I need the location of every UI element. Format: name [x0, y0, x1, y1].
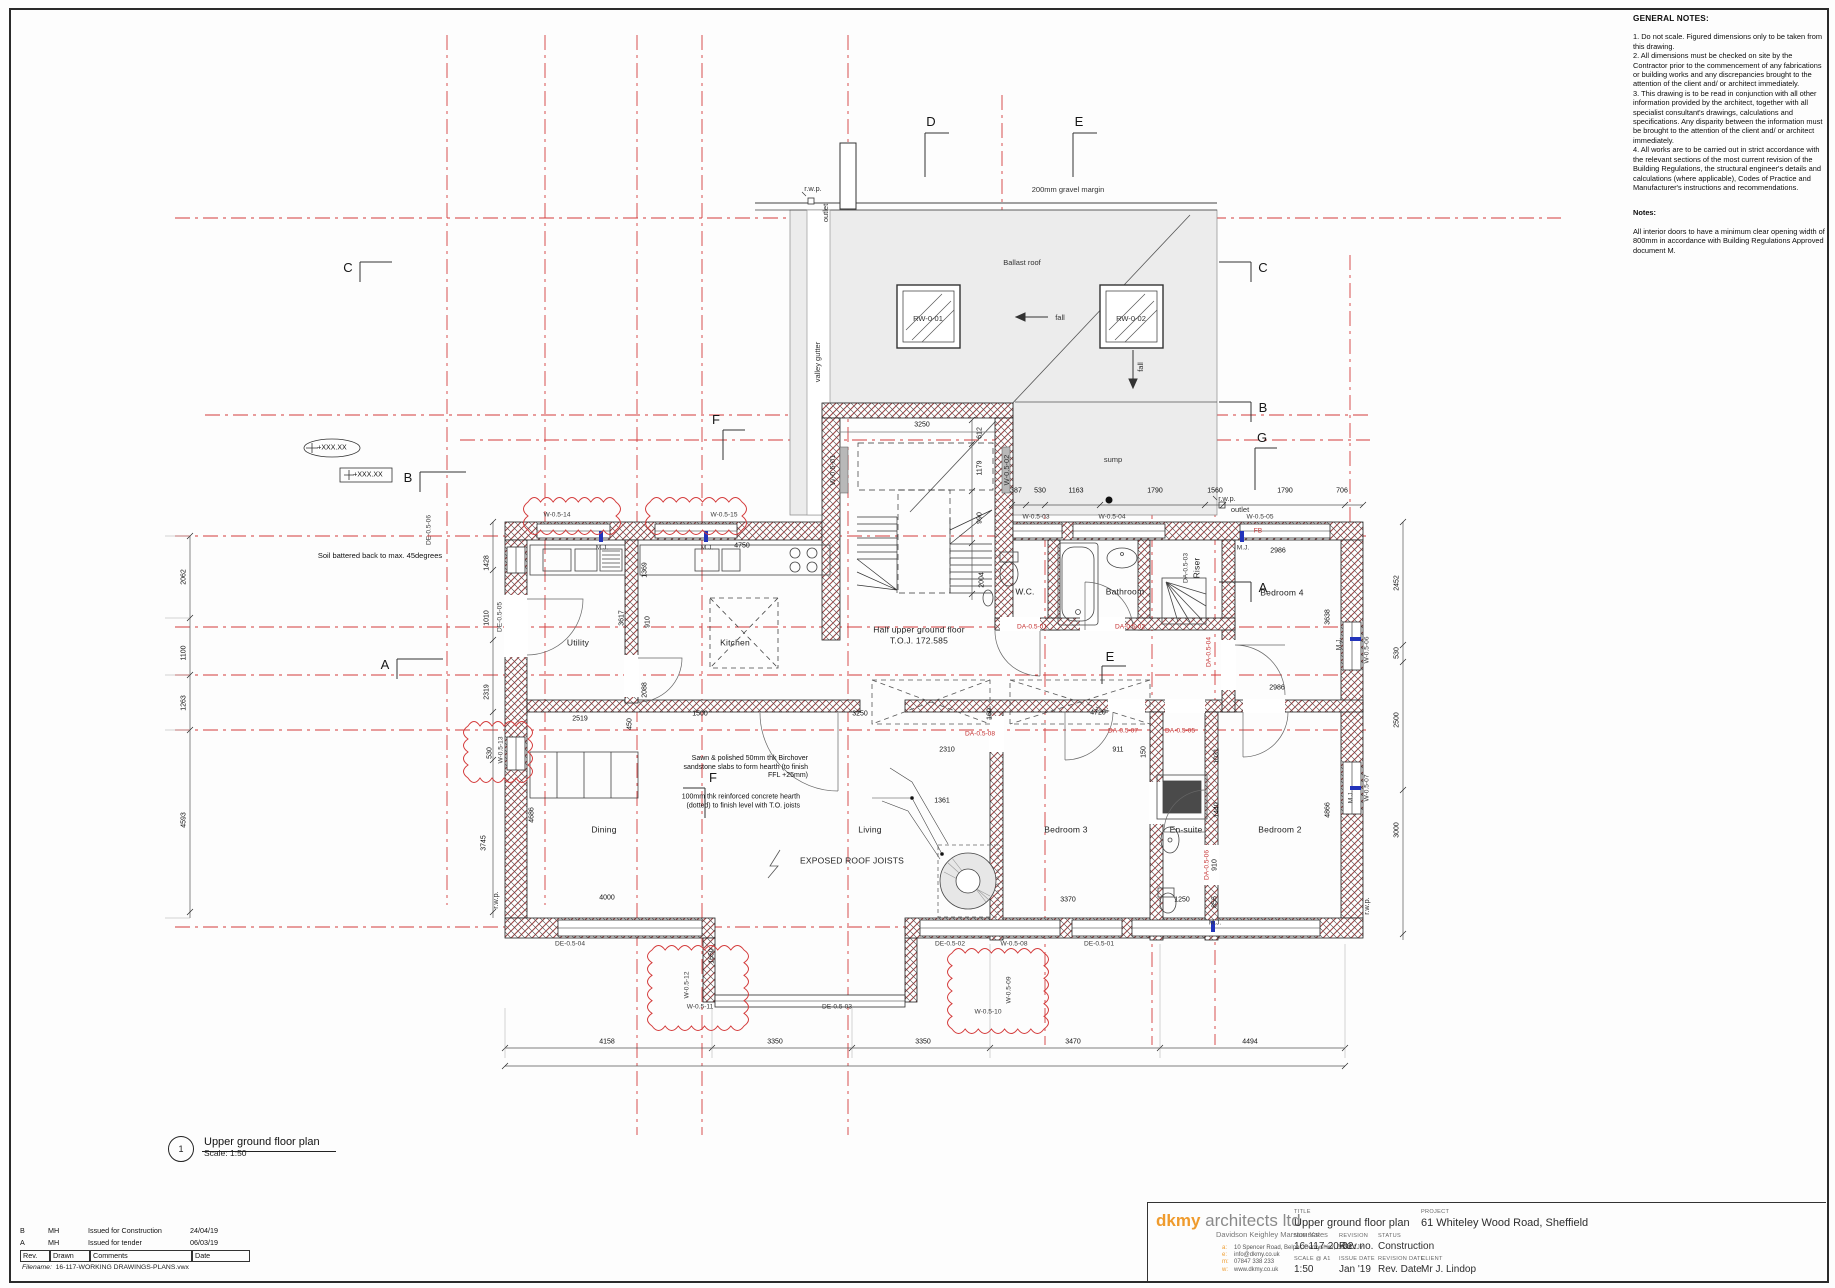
roof-label: r.w.p. [1218, 495, 1236, 503]
room-label: Kitchen [720, 639, 750, 648]
opening-tag: W-0.5-10 [975, 1010, 1002, 1017]
opening-tag: DA-0.5-04 [1207, 637, 1214, 667]
opening-tag: W-0.5-05 [1247, 515, 1274, 522]
roof-label: outlet [822, 204, 830, 222]
grid-letter: A [1259, 581, 1268, 595]
dimension-label: 3617 [618, 610, 625, 626]
opening-tag: DE-0.5-01 [1084, 942, 1114, 949]
room-label: W.C. [1015, 588, 1034, 597]
roof-label: fall [1137, 362, 1145, 372]
notes-body: All interior doors to have a minimum cle… [1633, 227, 1826, 255]
roof-label: 200mm gravel margin [1032, 186, 1105, 194]
opening-tag: DE-0.5-02 [935, 942, 965, 949]
dimension-label: 2319 [483, 684, 490, 700]
opening-tag: M.J. [1237, 546, 1249, 553]
dimension-label: 1250 [1174, 896, 1190, 903]
opening-tag: W-0.5-09 [1007, 977, 1014, 1004]
opening-tag: DA-0.5-06 [1205, 850, 1212, 880]
issue-date: Jan '19 [1339, 1264, 1371, 1275]
opening-tag: M.J. [701, 546, 713, 553]
dimension-label: 3638 [1324, 609, 1331, 625]
dimension-label: 612 [976, 427, 983, 439]
grid-letter: C [343, 261, 352, 275]
general-notes-heading: GENERAL NOTES: [1633, 14, 1826, 23]
dimension-label: 1010 [483, 610, 490, 626]
room-label: Living [858, 826, 881, 835]
dimension-label: 1100 [180, 645, 187, 660]
opening-tag: W-0.5-07 [1365, 775, 1372, 802]
opening-tag: W-0.5-08 [1001, 942, 1028, 949]
dimension-label: 2088 [641, 682, 648, 698]
grid-letter: C [1258, 261, 1267, 275]
dimension-label: 1560 [1207, 487, 1223, 494]
grid-letter: G [1257, 431, 1267, 445]
opening-tag: DA-0.5-05 [1165, 729, 1195, 736]
room-label: Bedroom 2 [1258, 826, 1301, 835]
dimension-label: 3470 [1065, 1038, 1081, 1045]
dimension-label: 3250 [852, 710, 868, 717]
dimension-label: 530 [486, 747, 493, 759]
opening-tag: DA-0.5-02 [1115, 625, 1145, 632]
notes-heading: Notes: [1633, 208, 1826, 217]
title-label: TITLE [1294, 1209, 1311, 1215]
dimension-label: 1031 [1213, 748, 1220, 764]
soil-note: Soil battered back to max. 45degrees [318, 552, 442, 560]
dimension-label: 530 [1034, 487, 1046, 494]
room-label: Dining [591, 826, 616, 835]
opening-tag: W-0.5-03 [1023, 515, 1050, 522]
roof-label: fall [1055, 314, 1065, 322]
dimension-label: 1790 [1277, 487, 1293, 494]
dimension-label: 4494 [1242, 1038, 1258, 1045]
client-label: CLIENT [1421, 1256, 1443, 1262]
opening-tag: DE-0.5-03 [822, 1005, 852, 1012]
room-label: Bedroom 3 [1044, 826, 1087, 835]
dimension-label: 4750 [734, 542, 750, 549]
revision-value: Rev no. [1339, 1241, 1373, 1252]
revision-date: Rev. Date [1378, 1264, 1422, 1275]
dimension-label: 2500 [1393, 712, 1400, 728]
dimension-label: 4000 [599, 894, 615, 901]
dimension-label: 2452 [1393, 575, 1400, 591]
room-label: T.O.J. 172.585 [890, 637, 948, 646]
dimension-label: 1650 [708, 948, 715, 964]
room-label: EXPOSED ROOF JOISTS [800, 857, 904, 866]
dimension-label: 3000 [1393, 822, 1400, 838]
dimension-label: 4593 [180, 812, 187, 828]
opening-tag: DA-0.5-07 [1108, 729, 1138, 736]
plan-number-bubble: 1 [168, 1136, 194, 1162]
roof-label: RW-0-01 [913, 315, 943, 323]
dimension-label: 1369 [641, 562, 648, 578]
opening-tag: DE-0.5-05 [498, 602, 505, 632]
drawing-scale: 1:50 [1294, 1264, 1313, 1275]
dimension-label: 3745 [480, 835, 487, 851]
plan-title-text: Upper ground floor plan [204, 1136, 320, 1148]
dimension-label: 910 [644, 616, 651, 628]
opening-tag: M.J. [1349, 791, 1356, 803]
opening-tag: W-0.5-15 [711, 513, 738, 520]
hearth-note-1: Sawn & polished 50mm thk Birchover sands… [683, 755, 808, 781]
opening-tag: FB [1254, 529, 1262, 536]
dimension-label: 4866 [1324, 802, 1331, 818]
roof-label: r.w.p. [804, 185, 822, 193]
dimension-label: 530 [1393, 647, 1400, 659]
opening-tag: DE-0.5-04 [555, 942, 585, 949]
dimension-label: 911 [1112, 746, 1123, 753]
opening-tag: W-0.5-06 [1365, 637, 1372, 664]
scale-label: SCALE @ A1 [1294, 1256, 1331, 1262]
level-marker-ellipse-text: +XXX.XX [317, 444, 346, 451]
dimension-label: 1440 [1213, 802, 1220, 818]
status-label: STATUS [1378, 1233, 1401, 1239]
filename: Filename: 16-117-WORKING DRAWINGS-PLANS.… [22, 1264, 189, 1271]
drawing-sheet: { "sheet": {"type": "architectural drawi… [0, 0, 1835, 1288]
client-name: Mr J. Lindop [1421, 1264, 1476, 1275]
revision-date-label: REVISION DATE [1378, 1256, 1425, 1262]
opening-tag: W-0.5-12 [685, 972, 692, 999]
opening-tag: M.J. [596, 546, 608, 553]
level-marker-box-text: +XXX.XX [353, 471, 382, 478]
roof-label: valley gutter [814, 342, 822, 382]
number-label: NUMBER [1294, 1233, 1320, 1239]
grid-letter: E [1106, 650, 1115, 664]
revision-row: B MH Issued for Construction 24/04/19 [20, 1224, 260, 1236]
opening-tag: W-0.5-04 [1099, 515, 1126, 522]
roof-label: Ballast roof [1003, 259, 1041, 267]
dimension-label: 1163 [1068, 487, 1083, 494]
dimension-label: 2062 [180, 569, 187, 585]
dimension-label: 3350 [767, 1038, 783, 1045]
project-name: 61 Whiteley Wood Road, Sheffield [1421, 1217, 1588, 1229]
project-label: PROJECT [1421, 1209, 1449, 1215]
roof-label: r.w.p. [1363, 897, 1371, 915]
opening-tag: DE-0.5-06 [427, 515, 434, 545]
dimension-label: 160 [986, 708, 993, 720]
dimension-label: 4720 [1090, 709, 1106, 716]
room-label: Bathroom [1106, 588, 1144, 597]
opening-tag: W-0.5-11 [687, 1005, 714, 1012]
general-notes-body: 1. Do not scale. Figured dimensions only… [1633, 32, 1826, 192]
drawing-title: Upper ground floor plan [1294, 1217, 1410, 1229]
roof-label: W-0.5-02 [1003, 455, 1011, 486]
room-label: En-suite [1170, 826, 1203, 835]
roof-label: r.w.p. [492, 891, 500, 909]
dimension-label: 150 [1140, 746, 1147, 758]
dimension-label: 4158 [599, 1038, 615, 1045]
dimension-label: 1790 [1147, 487, 1163, 494]
dimension-label: 1428 [483, 555, 490, 571]
general-notes: GENERAL NOTES: 1. Do not scale. Figured … [1633, 14, 1826, 255]
dimension-label: 910 [1211, 859, 1218, 871]
opening-tag: M.J. [1337, 638, 1344, 650]
opening-tag: M.J. [1209, 921, 1221, 928]
dimension-label: 1500 [692, 710, 708, 717]
dimension-label: 1361 [934, 797, 950, 804]
grid-letter: D [926, 115, 935, 129]
room-label: Half upper ground floor [873, 626, 965, 635]
opening-tag: DA-0.5-03 [1184, 553, 1191, 583]
title-block: dkmy architects ltd Davidson Keighley Ma… [1147, 1202, 1826, 1281]
issue-date-label: ISSUE DATE [1339, 1256, 1375, 1262]
dimension-label: 387 [1010, 487, 1022, 494]
dimension-label: 1263 [180, 695, 187, 711]
roof-label: sump [1104, 456, 1122, 464]
dimension-label: 3350 [915, 1038, 931, 1045]
plan-scale-text: Scale: 1:50 [204, 1148, 247, 1158]
grid-letter: B [1259, 401, 1268, 415]
opening-tag: DA-0.5-01 [1017, 625, 1047, 632]
opening-tag: W-0.5-13 [499, 737, 506, 764]
dimension-label: 990 [976, 512, 983, 524]
room-label: Utility [567, 639, 589, 648]
revision-header-row: Rev. Drawn Comments Date [20, 1250, 260, 1262]
dimension-label: 706 [1336, 487, 1348, 494]
firm-logo: dkmy architects ltd [1156, 1211, 1301, 1231]
grid-letter: F [712, 413, 720, 427]
revision-table: B MH Issued for Construction 24/04/19 A … [20, 1224, 260, 1262]
dimension-label: 2004 [978, 572, 985, 588]
dimension-label: 3370 [1060, 896, 1076, 903]
hearth-note-2: 100mm thk reinforced concrete hearth (do… [682, 793, 800, 810]
grid-letter: E [1075, 115, 1084, 129]
status-value: Construction [1378, 1241, 1434, 1252]
dimension-label: 2986 [1270, 547, 1286, 554]
dimension-label: 1179 [976, 460, 983, 475]
room-label: Riser [1193, 558, 1202, 579]
dimension-label: 450 [626, 718, 633, 730]
opening-tag: DA-0.5-08 [965, 732, 995, 739]
grid-letter: B [404, 471, 413, 485]
revision-row: A MH Issued for tender 06/03/19 [20, 1236, 260, 1248]
dimension-label: 4686 [528, 807, 535, 823]
dimension-label: 2986 [1269, 684, 1285, 691]
dimension-label: 2310 [939, 746, 955, 753]
revision-label: REVISION [1339, 1233, 1368, 1239]
dimension-label: 3250 [914, 421, 930, 428]
roof-label: RW-0-02 [1116, 315, 1146, 323]
dimension-label: 2519 [572, 715, 588, 722]
grid-letter: A [381, 658, 390, 672]
dimension-label: 855 [1211, 896, 1218, 908]
roof-label: W-0.5-01 [829, 455, 837, 486]
opening-tag: W-0.5-14 [544, 513, 571, 520]
